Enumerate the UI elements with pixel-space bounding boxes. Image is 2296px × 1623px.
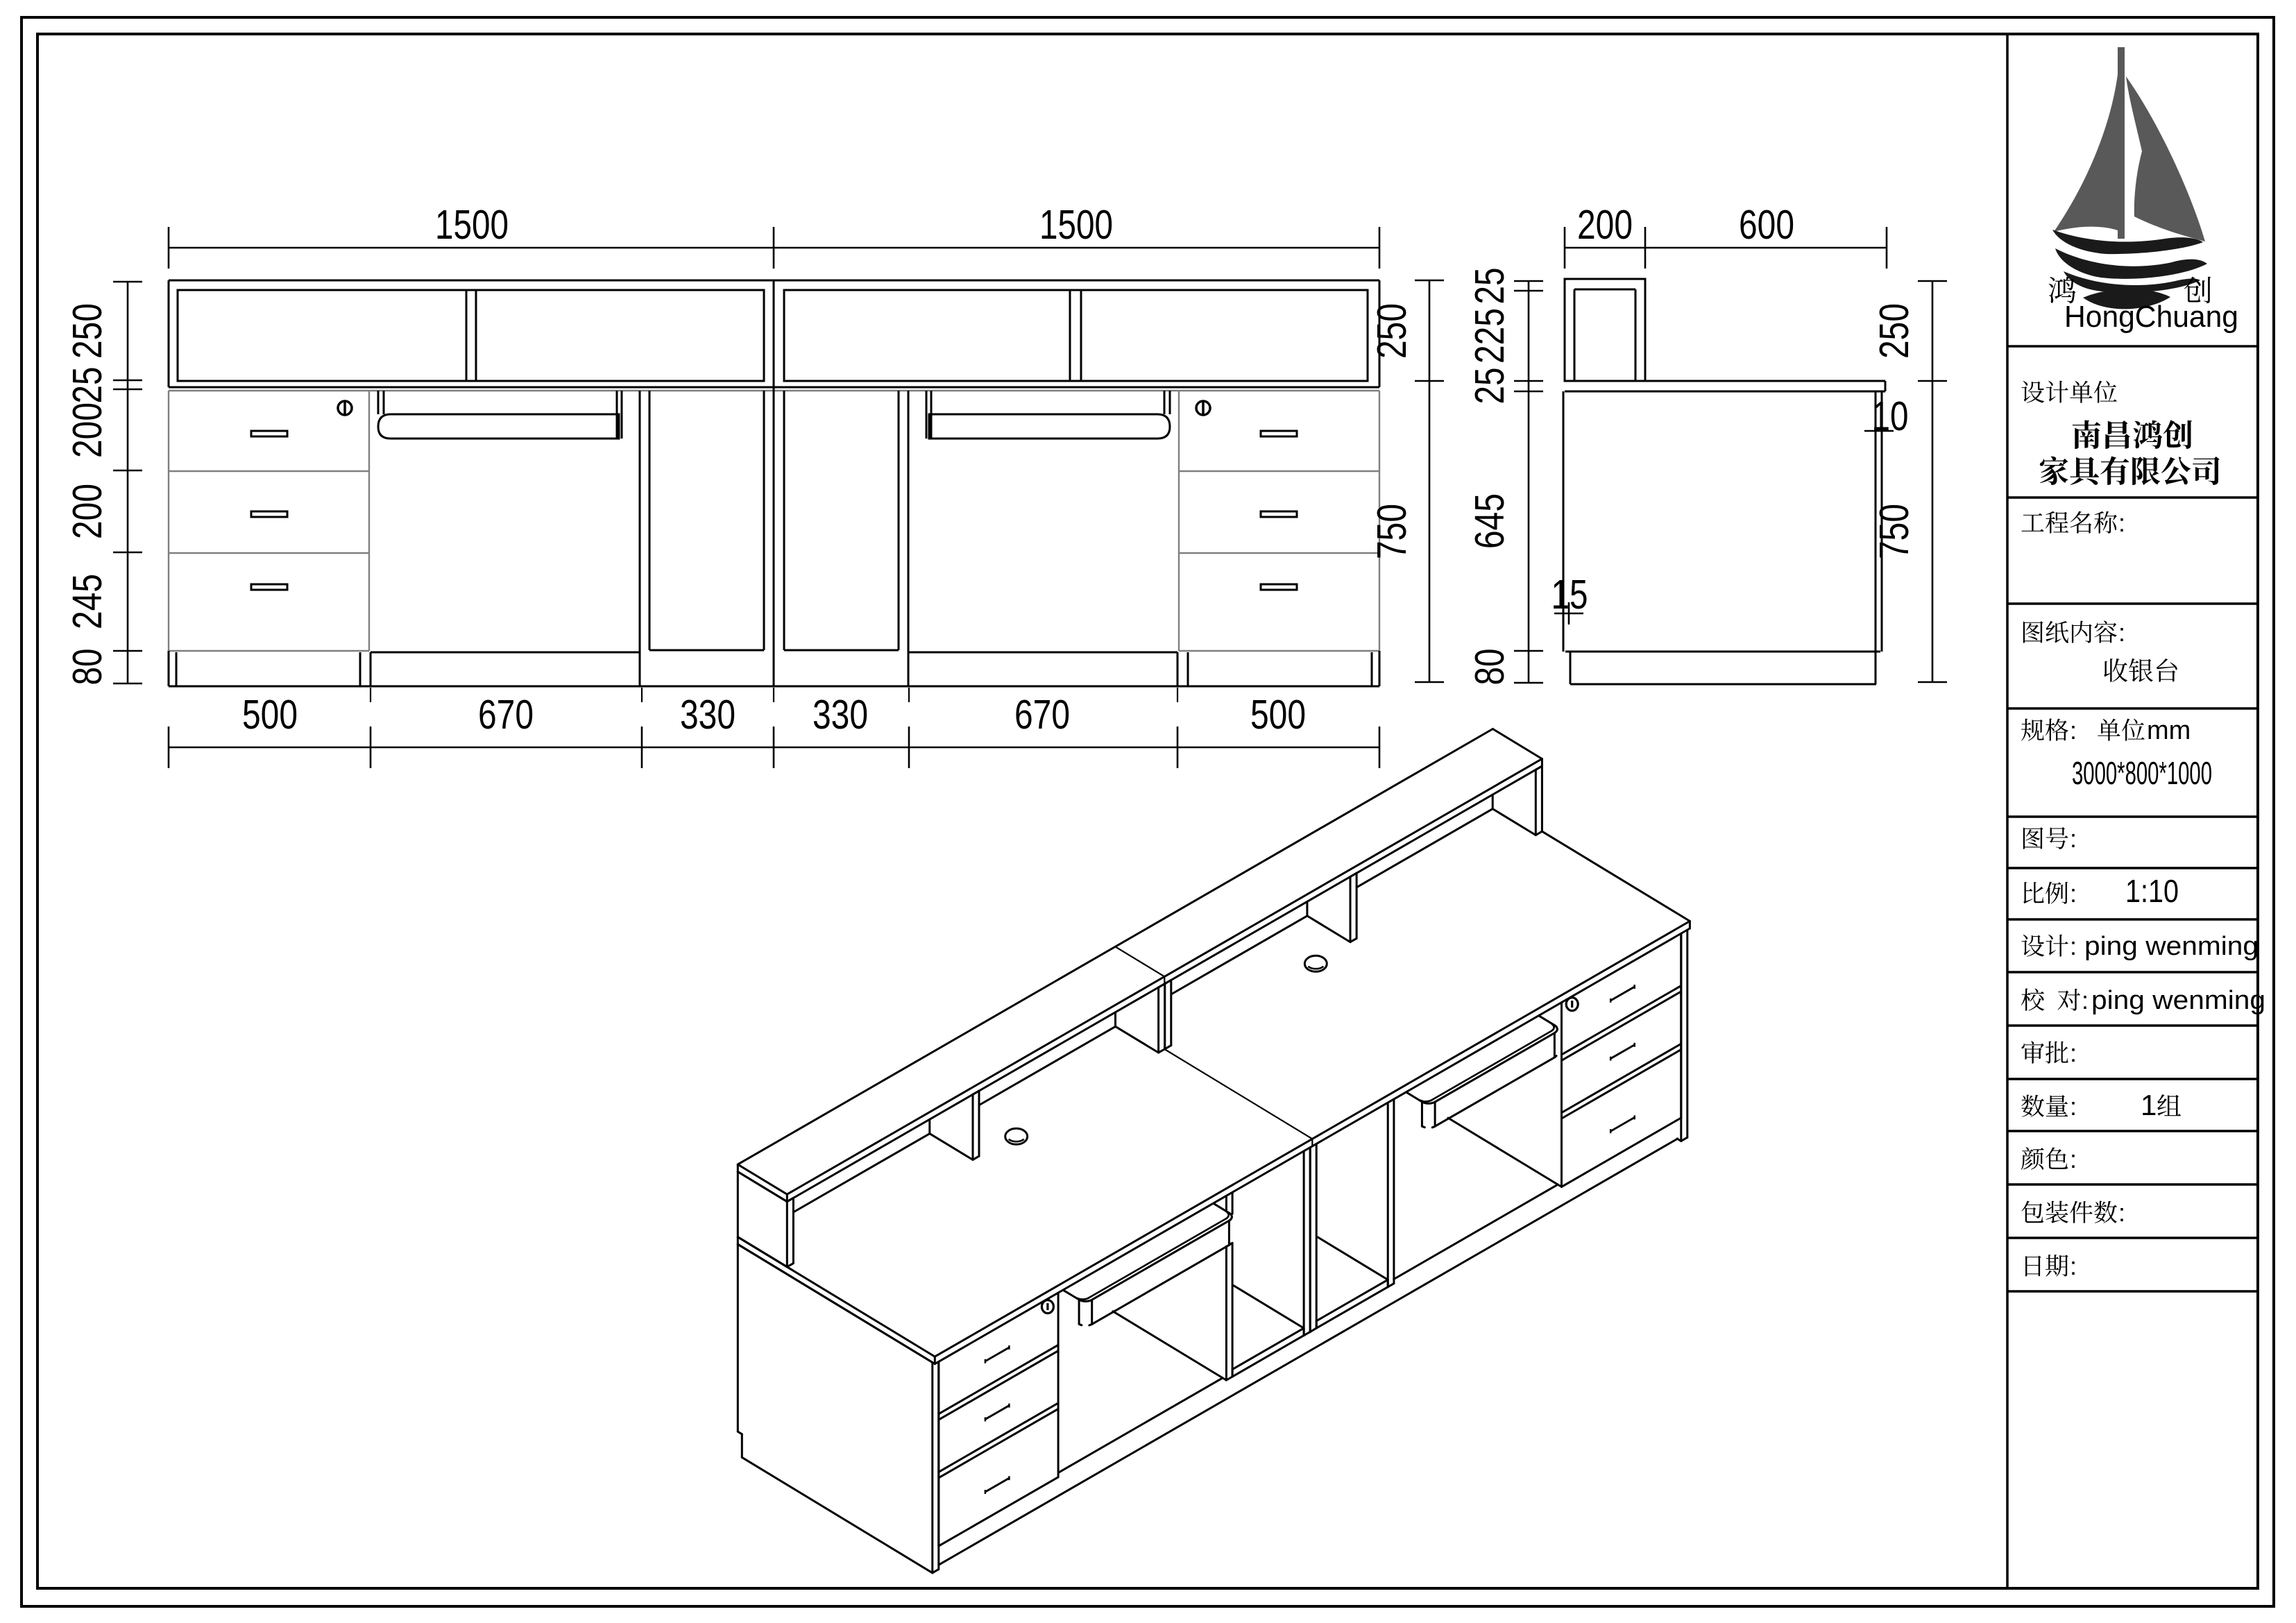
svg-text:250: 250 — [1871, 303, 1917, 359]
svg-text:645: 645 — [1467, 493, 1513, 549]
svg-text:670: 670 — [1014, 692, 1070, 738]
svg-text::: : — [2070, 1092, 2077, 1121]
svg-text:10: 10 — [1872, 393, 1909, 439]
svg-text::: : — [2118, 1198, 2125, 1227]
svg-text:600: 600 — [1739, 202, 1794, 248]
svg-text:1: 1 — [2141, 1089, 2157, 1121]
svg-text:1:10: 1:10 — [2125, 873, 2179, 909]
svg-text:500: 500 — [242, 692, 298, 738]
svg-text::: : — [2082, 986, 2089, 1014]
svg-text:750: 750 — [1369, 504, 1415, 559]
svg-text:80: 80 — [65, 649, 110, 686]
svg-text:1500: 1500 — [1039, 202, 1113, 248]
svg-text::: : — [2070, 1252, 2077, 1280]
svg-text::: : — [2070, 879, 2077, 908]
svg-text::: : — [2070, 824, 2077, 853]
svg-text:500: 500 — [1250, 692, 1306, 738]
svg-text:HongChuang: HongChuang — [2064, 300, 2238, 334]
svg-text:25: 25 — [65, 367, 110, 404]
svg-text:250: 250 — [65, 303, 110, 359]
svg-text::: : — [2070, 1145, 2077, 1173]
svg-text:ping wenming: ping wenming — [2084, 932, 2259, 961]
svg-text:200: 200 — [65, 484, 110, 539]
svg-text:25: 25 — [1467, 368, 1513, 405]
svg-text:670: 670 — [478, 692, 534, 738]
svg-text::: : — [2070, 716, 2077, 745]
svg-text:245: 245 — [65, 574, 110, 629]
svg-text:1500: 1500 — [435, 202, 509, 248]
svg-text:mm: mm — [2147, 716, 2191, 745]
svg-text:250: 250 — [1369, 303, 1415, 359]
svg-text:200: 200 — [65, 402, 110, 458]
svg-text:25: 25 — [1467, 268, 1513, 305]
svg-text:ping wenming: ping wenming — [2091, 986, 2265, 1015]
svg-text:200: 200 — [1577, 202, 1633, 248]
svg-text::: : — [2070, 932, 2077, 960]
svg-text:225: 225 — [1467, 308, 1513, 364]
svg-text::: : — [2118, 618, 2125, 647]
svg-text:80: 80 — [1467, 649, 1513, 686]
svg-text:330: 330 — [680, 692, 735, 738]
svg-text::: : — [2070, 1039, 2077, 1067]
svg-text:750: 750 — [1871, 504, 1917, 559]
svg-text:3000*800*1000: 3000*800*1000 — [2072, 755, 2212, 791]
svg-text:330: 330 — [813, 692, 868, 738]
svg-text::: : — [2118, 509, 2125, 537]
